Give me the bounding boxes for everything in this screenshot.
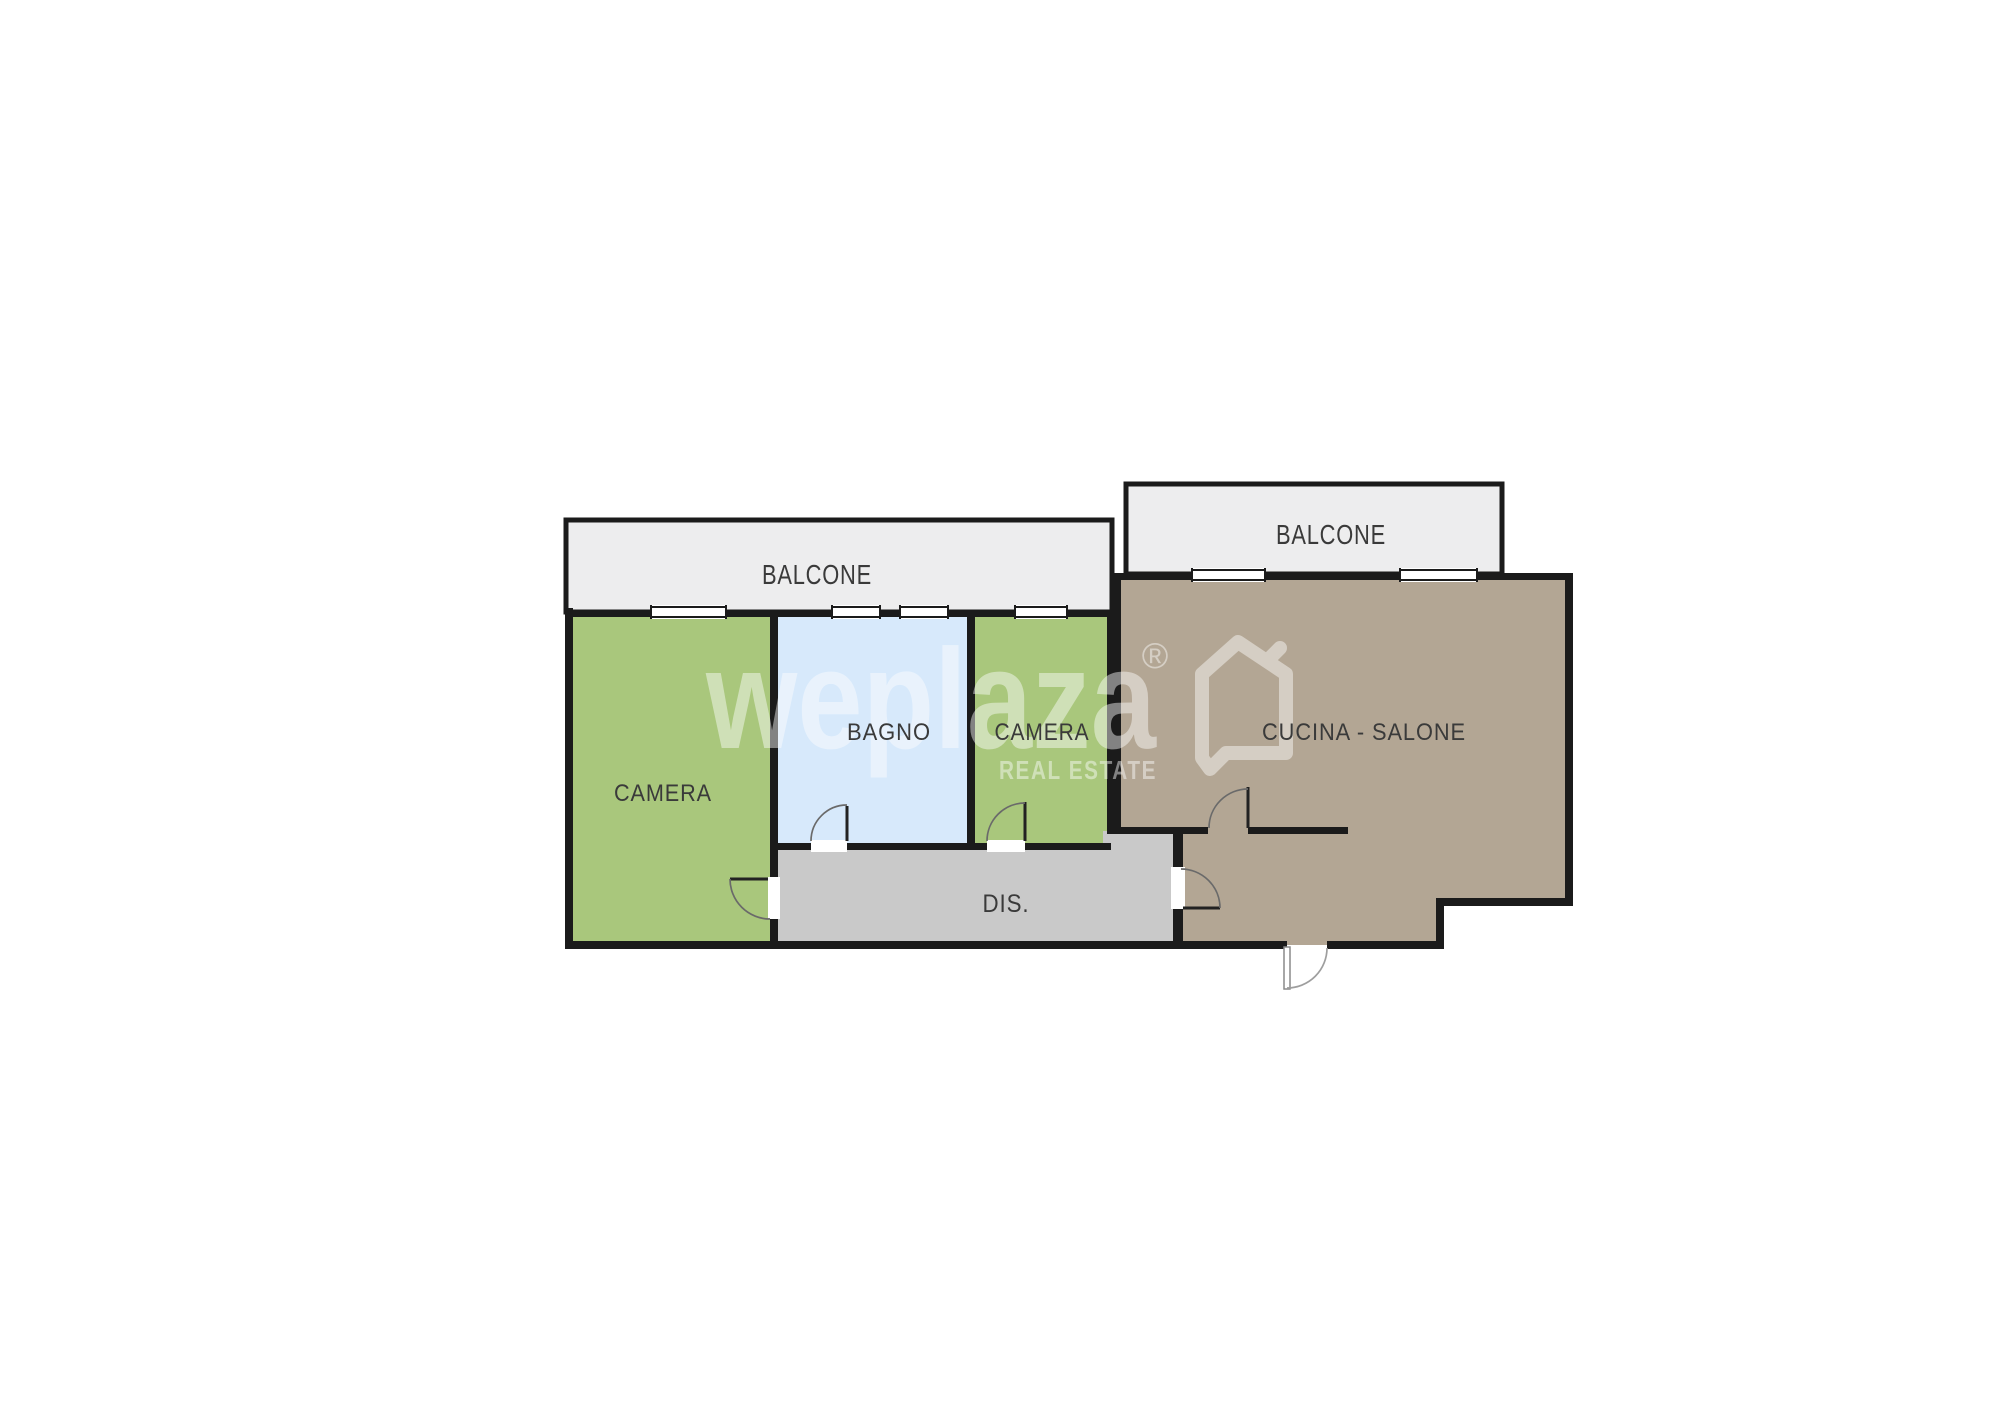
bedroom-middle-label: CAMERA	[995, 719, 1090, 746]
watermark-tagline: REAL ESTATE	[999, 755, 1157, 785]
watermark-chimney-icon	[1267, 648, 1280, 661]
wall-outer-right	[1565, 573, 1573, 906]
door-entrance	[1284, 947, 1327, 989]
floorplan-drawing: weplaza ® REAL ESTATE BALCONE BALCONE CA…	[0, 0, 1999, 1414]
hallway-label: DIS.	[983, 890, 1030, 918]
balcony-left-label: BALCONE	[762, 559, 872, 590]
wall-outer-bottom-mid	[1327, 941, 1443, 949]
wall-kitchen-top	[1113, 573, 1572, 580]
door-gap-hallway-kitchen	[1171, 867, 1185, 909]
window-kitchen-1	[1192, 568, 1265, 582]
door-gap-bedroom-left	[768, 877, 780, 919]
wall-outer-left	[565, 608, 573, 948]
entrance-door-leaf	[1284, 947, 1290, 989]
door-gap-bedroom-middle	[987, 840, 1025, 852]
window-bedroom-middle	[1015, 605, 1067, 619]
bathroom-label: BAGNO	[847, 719, 931, 746]
window-kitchen-2	[1400, 568, 1477, 582]
wall-outer-bottom-left	[565, 941, 1287, 949]
wall-outer-bottom-right	[1436, 898, 1572, 906]
door-gap-bathroom	[811, 840, 847, 852]
bedroom-left-label: CAMERA	[614, 780, 712, 807]
window-bathroom-1	[832, 605, 880, 619]
wall-kitchen-internal-right	[1248, 827, 1348, 834]
window-bedroom-left	[651, 605, 726, 619]
balcony-right-label: BALCONE	[1276, 519, 1386, 550]
floorplan-page: weplaza ® REAL ESTATE BALCONE BALCONE CA…	[0, 0, 1999, 1414]
watermark-registered-icon: ®	[1142, 635, 1169, 676]
kitchen-living-label: CUCINA - SALONE	[1262, 719, 1466, 746]
window-bathroom-2	[900, 605, 948, 619]
wall-kitchen-internal-left	[1107, 827, 1208, 834]
